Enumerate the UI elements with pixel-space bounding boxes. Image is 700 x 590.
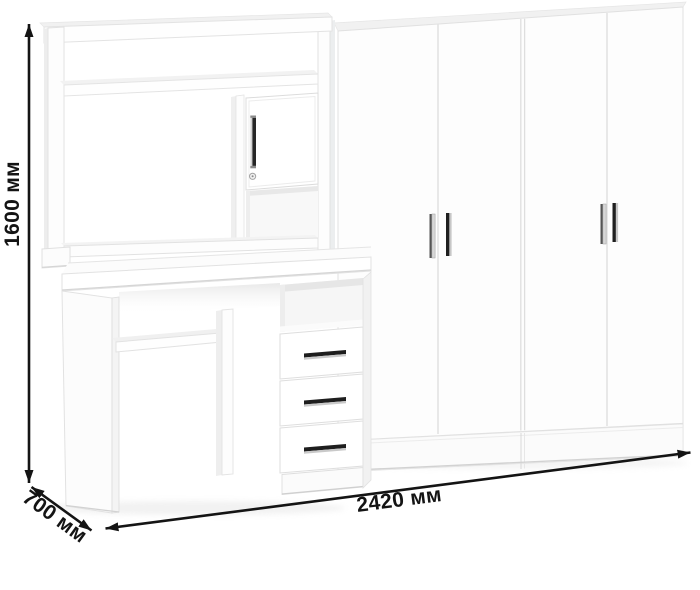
wardrobe-door-handle — [430, 214, 436, 258]
height-dimension-label: 1600 мм — [1, 161, 24, 247]
desk-divider-side — [216, 310, 222, 476]
desk-right-panel — [363, 272, 371, 488]
desk-hutch — [40, 13, 332, 268]
furniture-render: 1600 мм 700 мм 2420 мм — [0, 0, 700, 590]
drawer-niche — [280, 278, 363, 332]
desk-divider — [222, 309, 233, 475]
wardrobe-door-handle — [446, 213, 452, 256]
hutch-left-upright — [48, 27, 64, 255]
hutch-cabinet — [246, 93, 318, 190]
wardrobe-door-handle — [601, 204, 607, 244]
width-dimension-label: 2420 мм — [355, 483, 443, 517]
cabinet-lock — [250, 173, 256, 179]
under-desktop-shadow — [119, 283, 280, 315]
hutch-cabinet-door — [246, 93, 318, 190]
drawer-unit — [280, 278, 363, 495]
wardrobe-door-handle — [613, 203, 619, 242]
hutch-left-upright-side — [44, 28, 48, 257]
furniture-dimensions-figure: 1600 мм 700 мм 2420 мм — [0, 0, 700, 590]
hutch-divider-side — [231, 96, 236, 250]
hutch-divider — [236, 95, 244, 249]
hutch-foot — [42, 247, 70, 268]
cabinet-door-handle — [250, 116, 256, 169]
desk-left-panel — [62, 291, 112, 513]
desk — [62, 247, 371, 513]
wardrobe — [334, 2, 686, 472]
desk-left-panel-edge — [112, 297, 119, 513]
hutch-right-panel — [318, 20, 330, 258]
height-dimension: 1600 мм — [1, 24, 29, 483]
